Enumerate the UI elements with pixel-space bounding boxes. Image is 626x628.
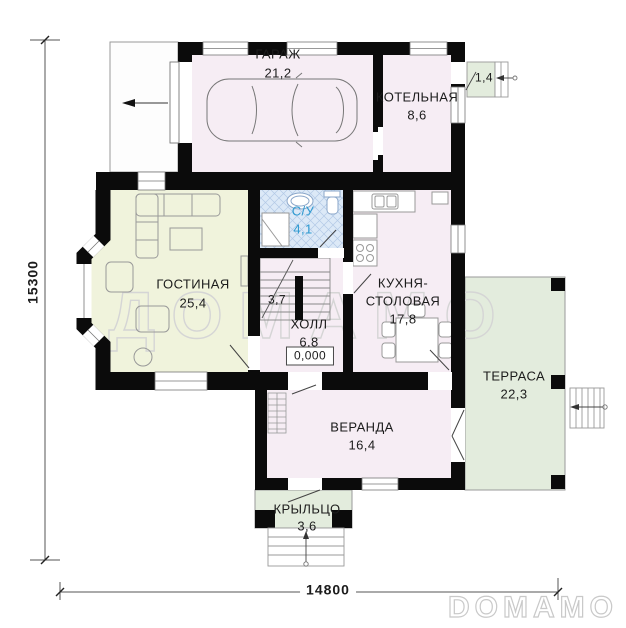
back-step-area-label: 1,4 [475, 72, 493, 85]
dimension-width: 14800 [300, 584, 356, 597]
living-room-area: 25,4 [180, 297, 207, 310]
floor-plan-canvas: ДОМАМО [0, 0, 626, 628]
hall-label: ХОЛЛ [291, 318, 328, 331]
dimension-height: 15300 [27, 254, 40, 310]
boiler-label: КОТЕЛЬНАЯ [376, 91, 458, 104]
terrace-area: 22,3 [501, 388, 528, 401]
terrace-label: ТЕРРАСА [483, 370, 545, 383]
living-room-label: ГОСТИНАЯ [156, 278, 229, 291]
boiler-area: 8,6 [407, 109, 426, 122]
kitchen-label-line1: КУХНЯ- [378, 277, 428, 290]
floor-elevation-mark: 0,000 [286, 347, 334, 366]
garage-label: ГАРАЖ [255, 48, 300, 61]
driveway [110, 42, 178, 172]
veranda-label: ВЕРАНДА [330, 421, 393, 434]
bathroom-label: С/У [292, 205, 314, 218]
bathroom-area: 4,1 [293, 223, 312, 236]
porch-area: 3,6 [297, 520, 316, 533]
porch-steps [268, 528, 344, 566]
kitchen-label-line2: СТОЛОВАЯ [366, 295, 440, 308]
kitchen-area: 17,8 [390, 313, 417, 326]
stairs-area-label: 3,7 [268, 294, 286, 307]
veranda-area: 16,4 [349, 439, 376, 452]
floor-plan-drawing: ДОМАМО [0, 0, 626, 628]
terrace-outside-stair [570, 388, 607, 428]
porch-label: КРЫЛЬЦО [273, 503, 340, 516]
domamo-logo: DOMAMO [448, 591, 618, 624]
garage-area: 21,2 [265, 67, 292, 80]
